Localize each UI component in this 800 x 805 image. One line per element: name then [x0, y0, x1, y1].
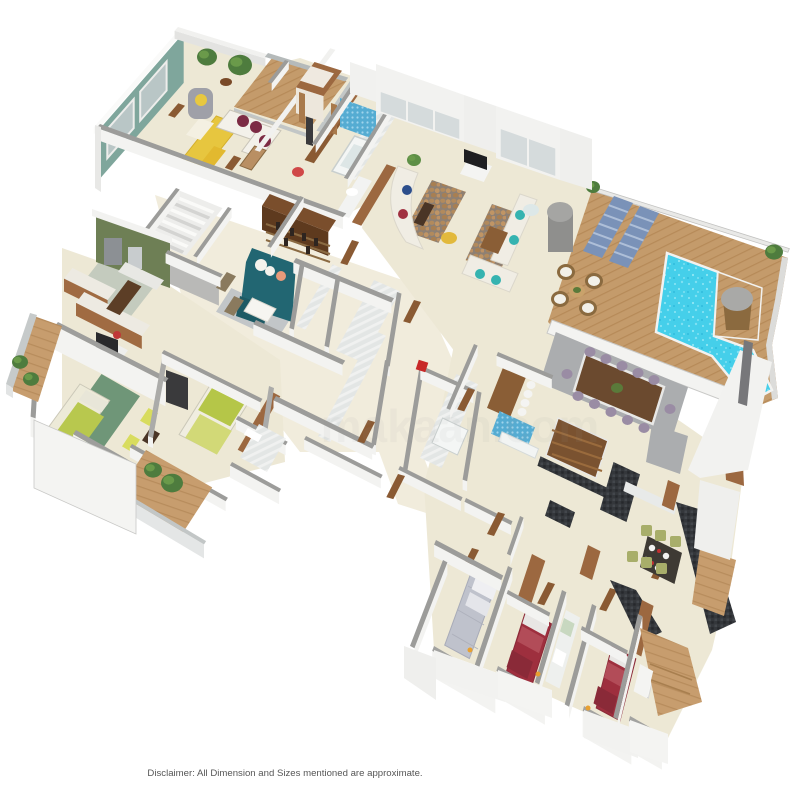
svg-text:Disclaimer: All Dimension and: Disclaimer: All Dimension and Sizes ment…: [147, 768, 422, 779]
svg-text:makaan.com: makaan.com: [321, 400, 600, 452]
